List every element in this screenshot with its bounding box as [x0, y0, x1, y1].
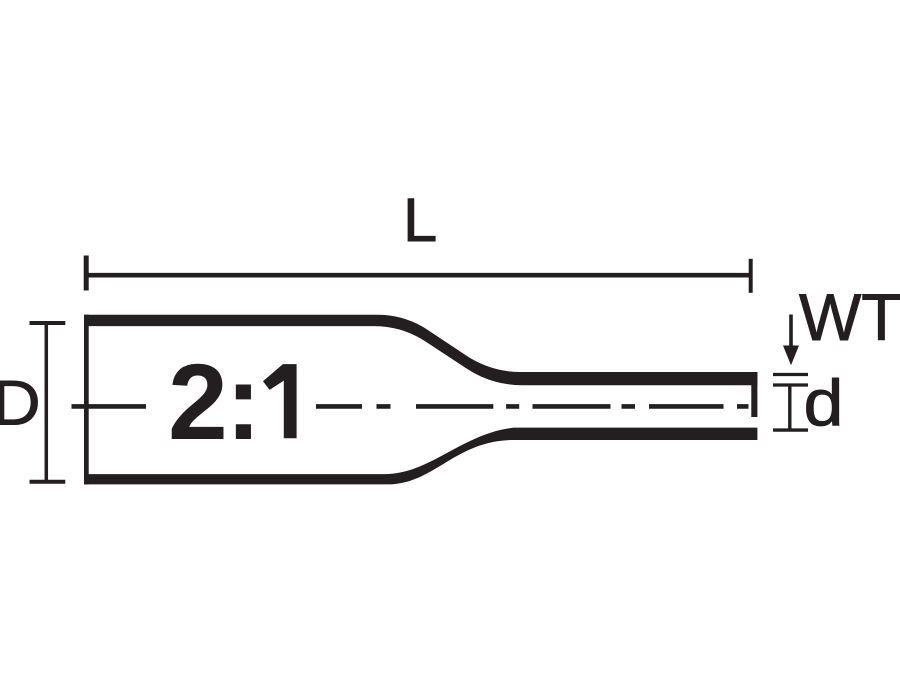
svg-text:2:: 2:: [168, 342, 259, 462]
svg-text:d: d: [804, 366, 844, 439]
svg-text:WT: WT: [799, 280, 900, 354]
svg-text:D: D: [0, 369, 41, 439]
svg-text:L: L: [403, 186, 437, 255]
